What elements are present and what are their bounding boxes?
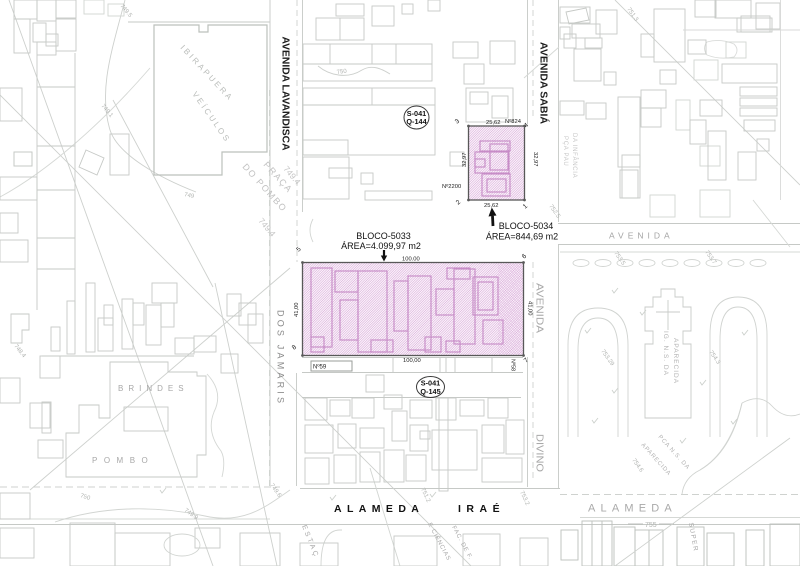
- svg-text:AVENIDA: AVENIDA: [609, 231, 674, 241]
- svg-text:ÁREA=844,69 m2: ÁREA=844,69 m2: [486, 232, 558, 242]
- svg-text:ALAMEDA: ALAMEDA: [588, 503, 677, 515]
- svg-text:DOS JAMARIS: DOS JAMARIS: [276, 310, 286, 406]
- svg-text:DIVINO: DIVINO: [534, 434, 545, 472]
- svg-text:32,97: 32,97: [462, 152, 468, 167]
- svg-text:AVENIDA: AVENIDA: [534, 283, 545, 333]
- svg-text:25,62: 25,62: [486, 120, 501, 126]
- svg-text:BLOCO-5033: BLOCO-5033: [356, 231, 411, 241]
- svg-text:ÁREA=4.099,97 m2: ÁREA=4.099,97 m2: [341, 241, 421, 251]
- svg-text:BRINDES: BRINDES: [118, 384, 189, 393]
- svg-text:41,00: 41,00: [294, 302, 300, 317]
- svg-text:APARECIDA: APARECIDA: [672, 338, 679, 384]
- svg-text:100.00: 100.00: [402, 257, 420, 263]
- svg-text:AVENIDA LAVANDISCA: AVENIDA LAVANDISCA: [280, 37, 291, 152]
- svg-text:Nº58: Nº58: [510, 359, 517, 371]
- svg-text:41,00: 41,00: [527, 301, 533, 316]
- svg-text:Q-144: Q-144: [406, 117, 427, 126]
- svg-text:Nº2200: Nº2200: [442, 183, 461, 190]
- svg-text:PÇA PAU: PÇA PAU: [562, 136, 568, 166]
- svg-text:IRAÉ: IRAÉ: [458, 502, 505, 515]
- svg-text:ALAMEDA: ALAMEDA: [334, 503, 424, 515]
- svg-text:IG. N.S. DA: IG. N.S. DA: [662, 331, 669, 376]
- svg-text:DA INFÂNCIA: DA INFÂNCIA: [571, 133, 578, 178]
- svg-text:25,62: 25,62: [484, 203, 499, 209]
- svg-text:Q-145: Q-145: [420, 387, 440, 396]
- svg-text:32,97: 32,97: [532, 152, 538, 167]
- svg-text:POMBO: POMBO: [92, 456, 154, 465]
- svg-text:AVENIDA SABIÁ: AVENIDA SABIÁ: [538, 42, 551, 125]
- svg-text:Nº824: Nº824: [505, 118, 522, 125]
- svg-text:755: 755: [645, 522, 657, 529]
- svg-text:Nº59: Nº59: [313, 364, 327, 371]
- svg-text:100,00: 100,00: [403, 358, 421, 364]
- svg-text:BLOCO-5034: BLOCO-5034: [499, 221, 554, 231]
